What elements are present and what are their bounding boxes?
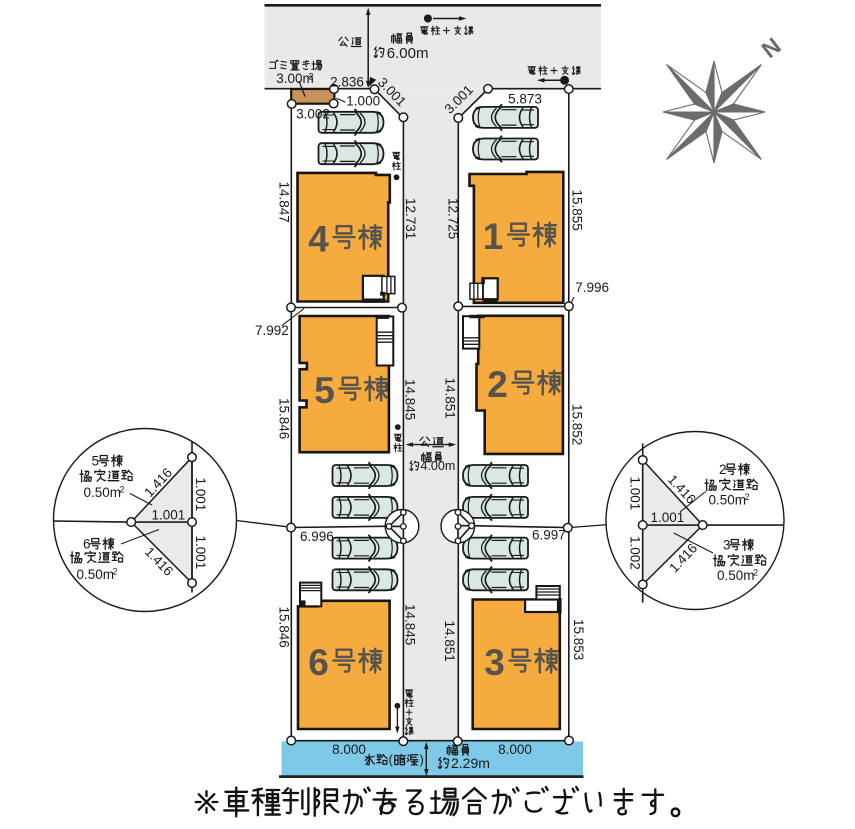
svg-text:15.846: 15.846 — [277, 607, 292, 648]
svg-text:14.847: 14.847 — [277, 182, 292, 223]
svg-text:1.001: 1.001 — [193, 536, 208, 570]
svg-text:3: 3 — [484, 642, 505, 683]
svg-text:0.50m: 0.50m — [84, 485, 122, 500]
svg-text:2: 2 — [745, 492, 750, 502]
svg-text:8.000: 8.000 — [498, 742, 532, 757]
svg-text:6: 6 — [83, 537, 91, 552]
svg-text:7.996: 7.996 — [575, 280, 609, 295]
svg-text:5: 5 — [92, 454, 100, 469]
svg-text:12.725: 12.725 — [446, 198, 461, 239]
svg-text:1: 1 — [483, 216, 504, 257]
svg-text:1.001: 1.001 — [628, 477, 643, 511]
svg-text:0.50m: 0.50m — [717, 568, 755, 583]
svg-text:6.00m: 6.00m — [387, 45, 429, 62]
svg-text:6: 6 — [308, 642, 329, 683]
svg-text:(: ( — [389, 752, 394, 767]
svg-text:2: 2 — [113, 567, 118, 577]
svg-text:): ) — [420, 752, 424, 767]
svg-text:14.845: 14.845 — [403, 604, 418, 645]
svg-text:8.000: 8.000 — [332, 742, 366, 757]
svg-text:15.846: 15.846 — [277, 398, 292, 439]
svg-text:2.29m: 2.29m — [451, 755, 490, 771]
svg-text:0.50m: 0.50m — [77, 567, 115, 582]
svg-text:4.00m: 4.00m — [421, 459, 456, 473]
svg-text:12.731: 12.731 — [403, 198, 418, 239]
svg-text:14.851: 14.851 — [443, 378, 458, 419]
svg-text:4: 4 — [308, 218, 329, 259]
svg-text:6.997: 6.997 — [532, 528, 566, 543]
svg-text:15.852: 15.852 — [570, 404, 585, 445]
svg-text:5.873: 5.873 — [508, 91, 542, 106]
svg-text:2: 2 — [309, 72, 314, 82]
svg-text:1.002: 1.002 — [628, 536, 643, 570]
svg-text:1.001: 1.001 — [152, 508, 186, 523]
svg-text:3.002: 3.002 — [296, 106, 330, 121]
svg-text:0.50m: 0.50m — [709, 493, 747, 508]
svg-text:6.996: 6.996 — [300, 529, 334, 544]
svg-text:2: 2 — [487, 364, 508, 405]
svg-text:7.992: 7.992 — [255, 323, 289, 338]
svg-text:2: 2 — [120, 485, 125, 495]
svg-text:15.855: 15.855 — [570, 190, 585, 231]
svg-text:2.836: 2.836 — [330, 74, 364, 89]
svg-text:15.853: 15.853 — [571, 619, 586, 660]
svg-text:2: 2 — [753, 568, 758, 578]
svg-text:14.851: 14.851 — [442, 621, 457, 662]
svg-text:1.001: 1.001 — [193, 478, 208, 512]
svg-text:5: 5 — [314, 370, 335, 411]
svg-text:1.001: 1.001 — [651, 510, 685, 525]
svg-text:14.845: 14.845 — [403, 379, 418, 420]
svg-text:1.000: 1.000 — [346, 94, 380, 109]
